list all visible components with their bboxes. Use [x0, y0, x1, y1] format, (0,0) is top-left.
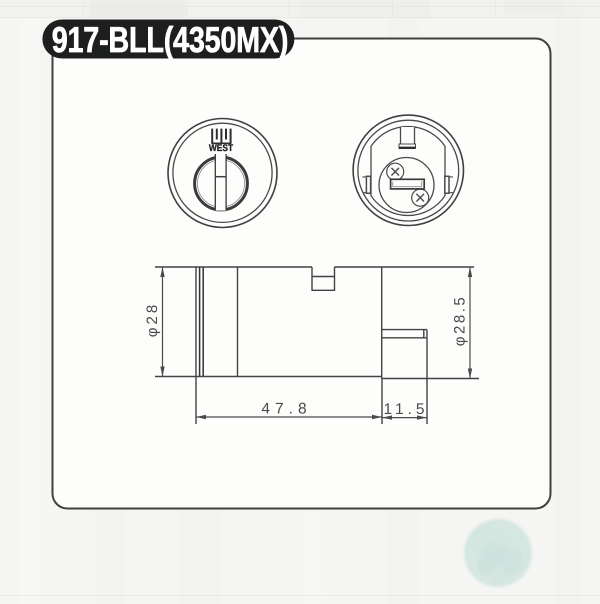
svg-text:11.5: 11.5: [383, 401, 428, 418]
svg-text:φ28.5: φ28.5: [452, 295, 469, 346]
svg-text:WEST: WEST: [209, 143, 233, 154]
svg-text:47.8: 47.8: [261, 401, 311, 418]
svg-text:917-BLL(4350MX): 917-BLL(4350MX): [52, 19, 288, 60]
svg-text:φ28: φ28: [144, 302, 161, 337]
